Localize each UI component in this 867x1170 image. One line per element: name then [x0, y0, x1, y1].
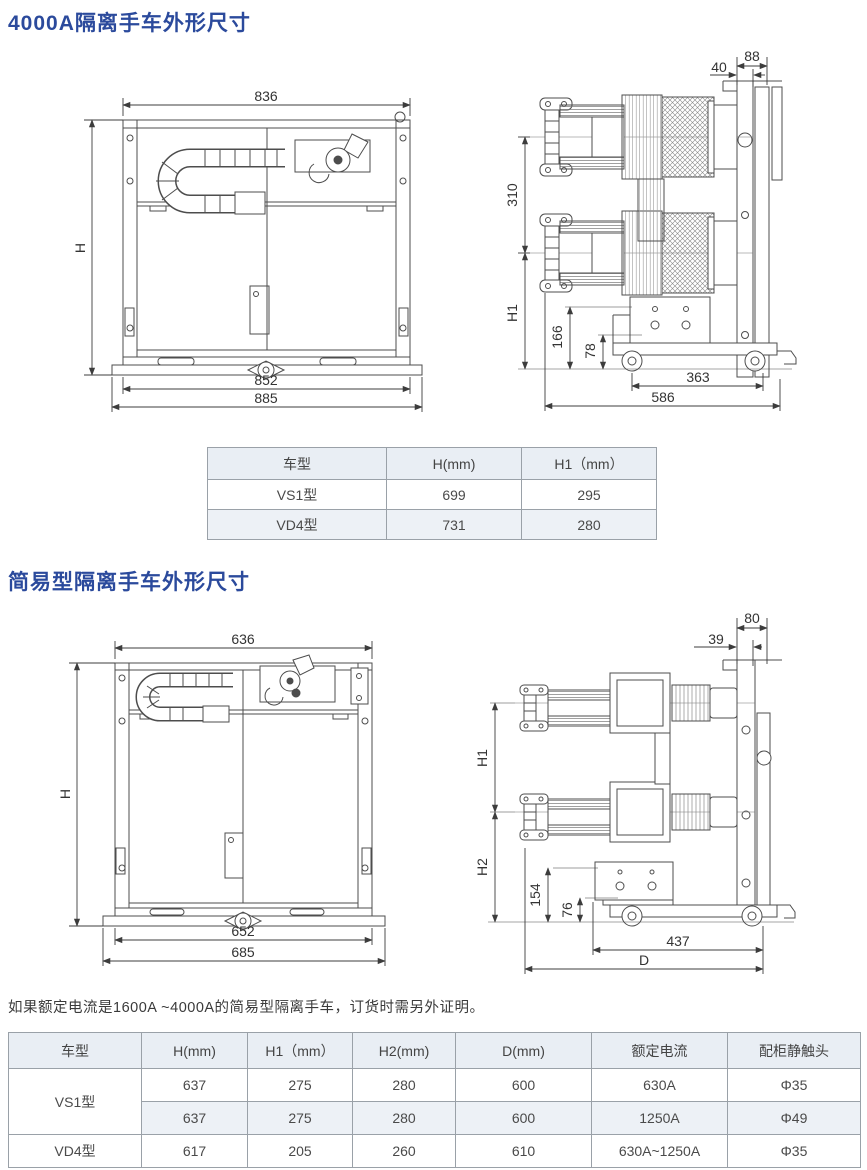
side-view-drawing-simple: 39 80 H1 H2 154 76 437 D — [470, 600, 867, 990]
pole-arms — [530, 95, 753, 295]
cell: 260 — [353, 1135, 456, 1168]
cell: 600 — [456, 1102, 592, 1135]
interlock-mechanism — [295, 134, 370, 183]
cell: Φ49 — [728, 1102, 861, 1135]
dim-label: 80 — [744, 610, 760, 626]
cell: 731 — [387, 510, 522, 540]
front-view-drawing-simple: 636 H 652 685 — [55, 618, 415, 990]
cell: 275 — [248, 1069, 353, 1102]
cell: 630A~1250A — [592, 1135, 728, 1168]
cell: 630A — [592, 1069, 728, 1102]
cable-chain — [156, 149, 285, 214]
dim-label: 885 — [254, 390, 278, 406]
dim-label: 40 — [711, 59, 727, 75]
table-row: VS1型 699 295 — [208, 480, 657, 510]
dim-label: 852 — [254, 372, 278, 388]
cell: 600 — [456, 1069, 592, 1102]
cell: 637 — [142, 1069, 248, 1102]
cell: 280 — [353, 1069, 456, 1102]
dim-label: 586 — [651, 389, 675, 405]
header-cell: H2(mm) — [353, 1033, 456, 1069]
dim-label: H1 — [504, 304, 520, 322]
header-cell: D(mm) — [456, 1033, 592, 1069]
cell: 1250A — [592, 1102, 728, 1135]
dim-label: 154 — [527, 883, 543, 907]
dim-label: 636 — [231, 631, 255, 647]
dim-label: 78 — [582, 343, 598, 359]
corner-bracket — [351, 668, 368, 704]
table-header-row: 车型 H(mm) H1（mm） — [208, 448, 657, 480]
header-cell: 车型 — [208, 448, 387, 480]
cell-model: VD4型 — [9, 1135, 142, 1168]
cell: 280 — [353, 1102, 456, 1135]
dim-label: 685 — [231, 944, 255, 960]
dim-label: H — [72, 243, 88, 253]
cell: VS1型 — [208, 480, 387, 510]
front-view-drawing-4000a: 836 H 852 885 — [70, 88, 450, 423]
catalog-page: 4000A隔离手车外形尺寸 — [0, 0, 867, 1170]
pole-arms — [515, 673, 755, 842]
cell: Φ35 — [728, 1135, 861, 1168]
cell: Φ35 — [728, 1069, 861, 1102]
cell: 617 — [142, 1135, 248, 1168]
cell: 610 — [456, 1135, 592, 1168]
cell: 637 — [142, 1102, 248, 1135]
page-title-simple-type: 简易型隔离手车外形尺寸 — [8, 566, 250, 596]
dim-label: 76 — [559, 902, 575, 918]
dim-label: H2 — [474, 858, 490, 876]
dim-label: 310 — [504, 183, 520, 207]
header-cell: H1（mm） — [522, 448, 657, 480]
header-cell: H1（mm） — [248, 1033, 353, 1069]
dim-label: 836 — [254, 88, 278, 104]
table-row: VD4型 731 280 — [208, 510, 657, 540]
table-header-row: 车型 H(mm) H1（mm） H2(mm) D(mm) 额定电流 配柜静触头 — [9, 1033, 861, 1069]
cell-model: VS1型 — [9, 1069, 142, 1135]
dim-label: 88 — [744, 48, 760, 64]
dim-label: 363 — [686, 369, 710, 385]
dim-label: 39 — [708, 631, 724, 647]
cell: VD4型 — [208, 510, 387, 540]
dim-label: H — [57, 789, 73, 799]
side-view-drawing-4000a: 40 88 310 H1 166 78 363 586 — [470, 45, 867, 427]
header-cell: 配柜静触头 — [728, 1033, 861, 1069]
dim-label: H1 — [474, 749, 490, 767]
dim-label: D — [639, 952, 649, 968]
table-row: VS1型 637 275 280 600 630A Φ35 — [9, 1069, 861, 1102]
cell: 205 — [248, 1135, 353, 1168]
dim-label: 166 — [549, 325, 565, 349]
table-row: VD4型 617 205 260 610 630A~1250A Φ35 — [9, 1135, 861, 1168]
order-note: 如果额定电流是1600A ~4000A的简易型隔离手车，订货时需另外证明。 — [8, 996, 485, 1017]
cell: 295 — [522, 480, 657, 510]
cell: 699 — [387, 480, 522, 510]
cell: 280 — [522, 510, 657, 540]
dimension-table-4000a: 车型 H(mm) H1（mm） VS1型 699 295 VD4型 731 28… — [207, 447, 657, 540]
header-cell: H(mm) — [142, 1033, 248, 1069]
cable-chain — [143, 673, 233, 722]
dimension-table-simple-type: 车型 H(mm) H1（mm） H2(mm) D(mm) 额定电流 配柜静触头 … — [8, 1032, 861, 1168]
header-cell: 车型 — [9, 1033, 142, 1069]
header-cell: H(mm) — [387, 448, 522, 480]
dim-label: 437 — [666, 933, 690, 949]
page-title-4000a: 4000A隔离手车外形尺寸 — [8, 7, 251, 37]
header-cell: 额定电流 — [592, 1033, 728, 1069]
cell: 275 — [248, 1102, 353, 1135]
dim-label: 652 — [231, 923, 255, 939]
